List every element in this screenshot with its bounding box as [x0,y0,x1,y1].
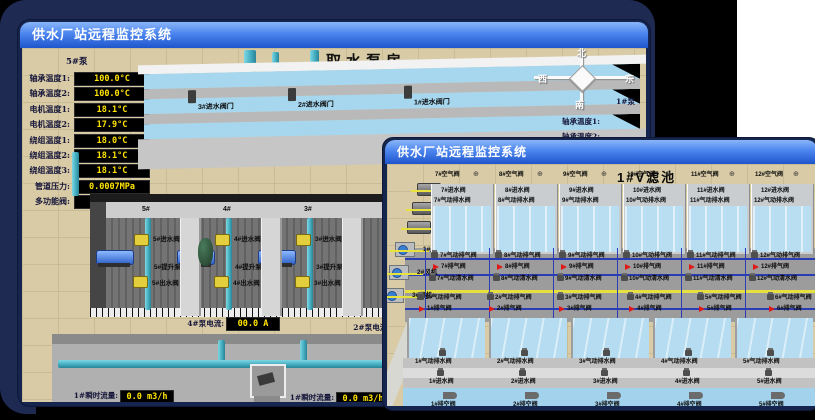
pool-drain-label: 1#气动排水阀 [415,359,452,366]
alarm-flag-icon [753,264,759,270]
inlet-valve-icon[interactable] [765,370,772,376]
alarm-flag-icon [769,306,775,312]
filter-pool[interactable] [489,318,567,358]
alarm-flag-icon [419,306,425,312]
vent-valve-label: 3#排气阀 [567,306,592,313]
drain-valve-icon[interactable] [767,350,774,356]
cell-drain-label: 12#气动排水阀 [754,198,794,205]
pump-current-label: 4#泵电流: [178,320,224,328]
pool-inlet-label: 4#进水阀 [675,379,700,386]
alarm-flag-icon [629,306,635,312]
inlet-valve-icon[interactable] [683,370,690,376]
vent-valve-label: 8#排气阀 [505,264,530,271]
exhaust-valve-label: 11#气动排气阀 [696,253,736,260]
walkway-beam [403,368,815,378]
cell-pipe-line [425,248,426,320]
air-valve-label: 7#空气阀 [435,172,460,179]
vent-valve-label: 6#排气阀 [777,306,802,313]
air-valve-label: 12#空气阀 [755,172,783,179]
alarm-flag-icon [561,264,567,270]
air-valve-label: 11#空气阀 [691,172,719,179]
exhaust-valve-label: 4#气动排气阀 [635,295,672,302]
drain-valve-icon[interactable] [685,350,692,356]
filter-pool[interactable] [571,318,649,358]
front-window: 供水厂站远程监控系统 1#V滤池 1#水泵2#水泵3#水泵1#风机2#风机3#风… [383,138,815,410]
front-window-titlebar[interactable]: 供水厂站远程监控系统 [385,140,815,164]
filter-water [753,206,811,252]
pool-empty-label: 1#排空阀 [431,402,456,406]
clear-valve-icon[interactable] [685,275,692,281]
clear-valve-label: 8#气动清水阀 [501,276,538,283]
inlet-valve-icon[interactable] [601,370,608,376]
pool-drain-label: 2#气动排水阀 [497,359,534,366]
air-valve-label: 10#空气阀 [627,172,655,179]
exhaust-valve-label: 8#气动排气阀 [504,253,541,260]
pool-empty-label: 2#排空阀 [513,402,538,406]
pool-empty-label: 3#排空阀 [595,402,620,406]
filter-water [497,206,555,252]
exhaust-valve-icon[interactable] [487,294,494,300]
air-valve-icon[interactable]: ⊕ [729,171,735,178]
filter-water [561,206,619,252]
clear-valve-label: 10#气动清水阀 [629,276,669,283]
back-window-titlebar[interactable]: 供水厂站远程监控系统 [20,22,648,48]
exhaust-valve-label: 12#气动排气阀 [760,253,800,260]
clear-valve-icon[interactable] [749,275,756,281]
exhaust-valve-label: 6#气动排气阀 [775,295,812,302]
filter-water [625,206,683,252]
clear-valve-label: 7#气动清水阀 [437,276,474,283]
exhaust-valve-icon[interactable] [687,252,694,258]
alarm-flag-icon [559,306,565,312]
vent-valve-label: 1#排气阀 [427,306,452,313]
air-valve-icon[interactable]: ⊕ [601,171,607,178]
filter-water [433,206,491,252]
desktop: 供水厂站远程监控系统 取水泵房 5#泵 轴承温度1:100.0°C轴承温度2:1… [0,0,815,420]
filter-pool[interactable] [735,318,813,358]
exhaust-valve-icon[interactable] [431,252,438,258]
flow-label: 1#瞬时流量: [52,392,118,400]
cell-pipe-line [617,248,618,320]
exhaust-valve-label: 7#气动排气阀 [440,253,477,260]
vent-valve-label: 12#排气阀 [761,264,789,271]
exhaust-valve-icon[interactable] [627,294,634,300]
cell-drain-label: 8#气动排水阀 [498,198,535,205]
exhaust-valve-icon[interactable] [417,294,424,300]
exhaust-valve-label: 3#气动排气阀 [565,295,602,302]
flow-label: 1#瞬时流量: [268,394,334,402]
pool-drain-label: 3#气动排水阀 [579,359,616,366]
clear-valve-icon[interactable] [557,275,564,281]
filter-cells-bottom-bank: 1#气动排水阀1#进水阀1#排空阀2#气动排水阀2#进水阀2#排空阀3#气动排水… [403,318,815,406]
inlet-valve-icon[interactable] [519,370,526,376]
clear-valve-label: 11#气动清水阀 [693,276,733,283]
drain-valve-icon[interactable] [521,350,528,356]
vent-valve-label: 7#排气阀 [441,264,466,271]
cell-drain-label: 10#气动排水阀 [626,198,666,205]
cell-inlet-label: 12#进水阀 [761,188,789,195]
air-valve-icon[interactable]: ⊕ [473,171,479,178]
cell-inlet-label: 8#进水阀 [505,188,530,195]
clear-valve-label: 12#气动清水阀 [757,276,797,283]
air-valve-label: 9#空气阀 [563,172,588,179]
exhaust-valve-icon[interactable] [557,294,564,300]
cell-drain-label: 7#气动排水阀 [434,198,471,205]
exhaust-valve-icon[interactable] [559,252,566,258]
pool-inlet-label: 1#进水阀 [429,379,454,386]
exhaust-valve-icon[interactable] [767,294,774,300]
clear-valve-label: 9#气动清水阀 [565,276,602,283]
drain-valve-icon[interactable] [439,350,446,356]
exhaust-valve-icon[interactable] [495,252,502,258]
filter-pool[interactable] [653,318,731,358]
cell-drain-label: 11#气动排水阀 [690,198,730,205]
alarm-flag-icon [489,306,495,312]
filter-pool[interactable] [407,318,485,358]
back-window-title: 供水厂站远程监控系统 [32,27,172,42]
vent-valve-label: 5#排气阀 [707,306,732,313]
clear-valve-icon[interactable] [493,275,500,281]
cell-inlet-label: 7#进水阀 [441,188,466,195]
clear-valve-icon[interactable] [429,275,436,281]
alarm-flag-icon [699,306,705,312]
alarm-flag-icon [689,264,695,270]
drain-elbow-icon[interactable] [525,392,539,399]
exhaust-valve-label: 10#气动排气阀 [632,253,672,260]
air-valve-icon[interactable]: ⊕ [793,171,799,178]
pool-empty-label: 4#排空阀 [677,402,702,406]
drain-elbow-icon[interactable] [443,392,457,399]
alarm-flag-icon [625,264,631,270]
inlet-valve-icon[interactable] [437,370,444,376]
cell-inlet-label: 11#进水阀 [697,188,725,195]
air-valve-icon[interactable]: ⊕ [665,171,671,178]
pool-empty-label: 5#排空阀 [759,402,784,406]
filter-water [689,206,747,252]
cell-inlet-label: 9#进水阀 [569,188,594,195]
filter-pool-scene: 1#V滤池 1#水泵2#水泵3#水泵1#风机2#风机3#风机 7#空气阀⊕7#进… [387,164,815,406]
drain-elbow-icon[interactable] [771,392,785,399]
vent-valve-label: 4#排气阀 [637,306,662,313]
vent-valve-label: 10#排气阀 [633,264,661,271]
drain-elbow-icon[interactable] [689,392,703,399]
flow-value: 0.0 m3/h [336,392,390,402]
exhaust-valve-icon[interactable] [697,294,704,300]
exhaust-valve-icon[interactable] [623,252,630,258]
front-window-title: 供水厂站远程监控系统 [397,145,527,159]
exhaust-valve-label: 2#气动排气阀 [495,295,532,302]
clear-valve-icon[interactable] [621,275,628,281]
pool-inlet-label: 3#进水阀 [593,379,618,386]
drain-elbow-icon[interactable] [607,392,621,399]
vent-valve-label: 2#排气阀 [497,306,522,313]
exhaust-valve-label: 5#气动排气阀 [705,295,742,302]
air-valve-icon[interactable]: ⊕ [537,171,543,178]
air-valve-label: 8#空气阀 [499,172,524,179]
exhaust-valve-icon[interactable] [751,252,758,258]
cell-pipe-line [681,248,682,320]
exhaust-valve-label: 1#气动排气阀 [425,295,462,302]
flow-value: 0.0 m3/h [120,390,174,402]
pool-drain-label: 5#气动排水阀 [743,359,780,366]
cell-pipe-line [553,248,554,320]
pool-drain-label: 4#气动排水阀 [661,359,698,366]
alarm-flag-icon [433,264,439,270]
cell-inlet-label: 10#进水阀 [633,188,661,195]
vent-valve-label: 11#排气阀 [697,264,725,271]
cell-drain-label: 9#气动排水阀 [562,198,599,205]
pump-current-value: 00.0 A [226,317,280,331]
cell-pipe-line [745,248,746,320]
pool-inlet-label: 2#进水阀 [511,379,536,386]
alarm-flag-icon [497,264,503,270]
exhaust-valve-label: 9#气动排气阀 [568,253,605,260]
vent-valve-label: 9#排气阀 [569,264,594,271]
drain-valve-icon[interactable] [603,350,610,356]
pool-inlet-label: 5#进水阀 [757,379,782,386]
